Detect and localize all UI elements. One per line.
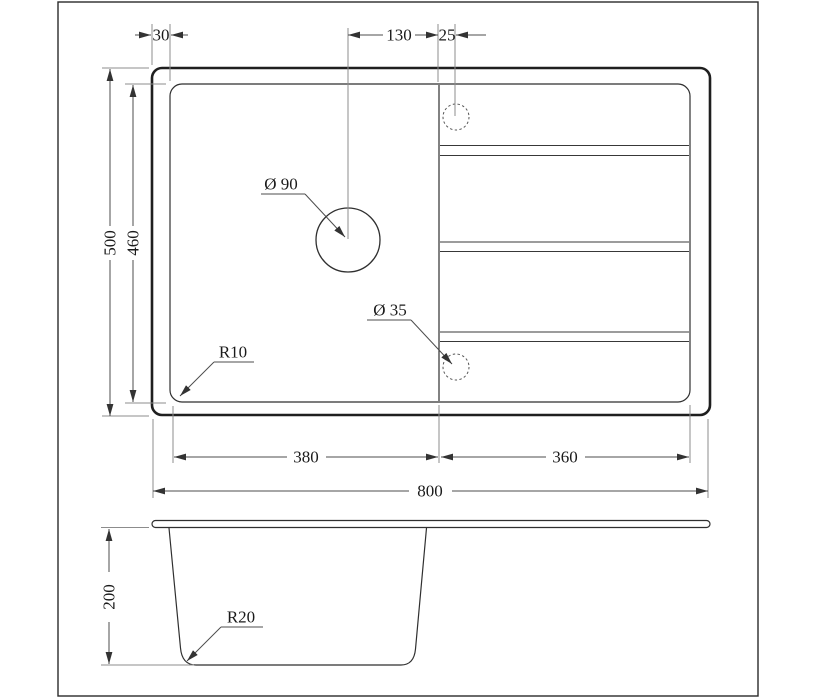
label-drain-hole: Ø 90 — [264, 175, 298, 194]
dim-label-800: 800 — [417, 482, 443, 501]
dim-label-360: 360 — [552, 448, 578, 467]
dimension-overall-depth: 500 — [101, 69, 120, 416]
bowl-profile — [169, 528, 427, 665]
extension-lines-top — [152, 24, 455, 239]
callout-bottom-radius: R20 — [187, 608, 263, 662]
dimension-hole-to-divider: 130 — [348, 26, 438, 45]
drawing-canvas: 30 130 25 500 460 — [0, 0, 816, 700]
dimension-overall-width: 800 — [153, 482, 708, 501]
callout-corner-radius: R10 — [180, 343, 254, 397]
dim-label-30: 30 — [153, 26, 170, 45]
leader-line — [305, 194, 345, 237]
drawing-frame-border — [58, 2, 758, 696]
top-view: 30 130 25 500 460 — [101, 24, 711, 501]
leader-line — [180, 362, 214, 396]
label-bottom-radius: R20 — [227, 608, 255, 627]
label-tap-hole: Ø 35 — [373, 301, 407, 320]
technical-drawing-sink: 30 130 25 500 460 — [0, 0, 816, 700]
label-corner-radius: R10 — [219, 343, 247, 362]
dimension-drainboard-width: 360 — [441, 448, 689, 467]
sink-inner-edge — [170, 84, 690, 402]
dim-label-25: 25 — [439, 26, 456, 45]
dim-label-130: 130 — [386, 26, 412, 45]
dimension-rim-offset: 30 — [135, 26, 188, 45]
callout-drain-hole: Ø 90 — [261, 175, 345, 238]
dimension-inner-depth: 460 — [124, 85, 143, 402]
dimension-bowl-width: 380 — [174, 448, 438, 467]
tap-hole-top-circle — [443, 104, 469, 130]
dimension-bowl-depth: 200 — [100, 529, 119, 664]
dim-label-500: 500 — [101, 230, 120, 256]
dim-label-460: 460 — [124, 230, 143, 256]
section-view: 200 R20 — [100, 521, 711, 666]
dim-label-200: 200 — [100, 584, 119, 610]
dimension-divider-to-tap: 25 — [439, 26, 487, 45]
leader-line — [187, 627, 221, 661]
dim-label-380: 380 — [293, 448, 319, 467]
drainboard-grooves — [440, 146, 689, 342]
sink-flange-profile — [152, 521, 710, 528]
